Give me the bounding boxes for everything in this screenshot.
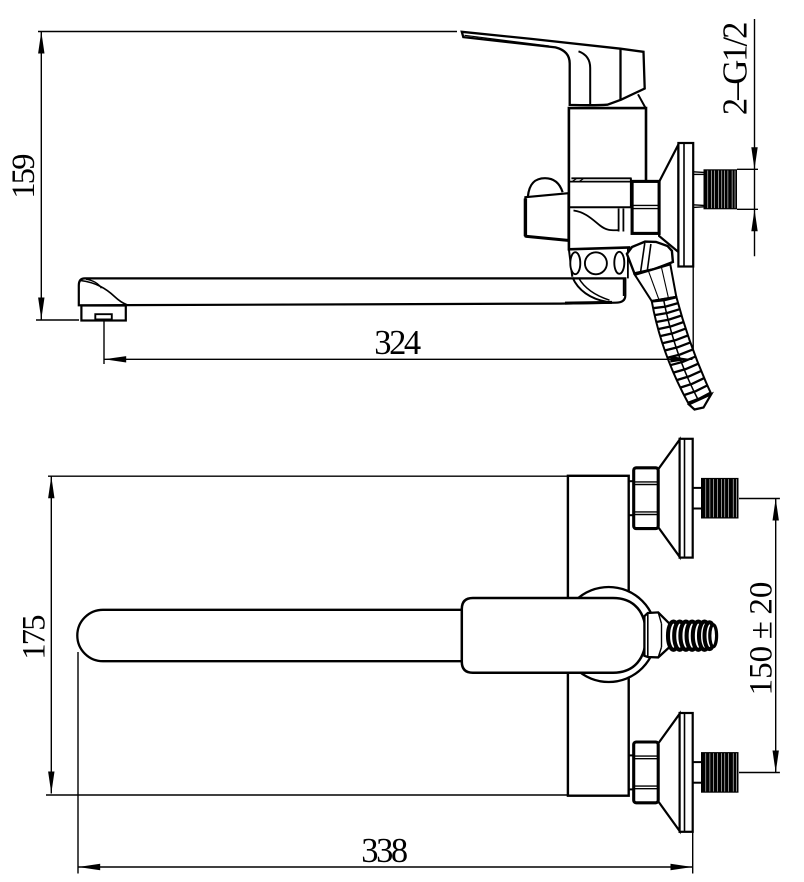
svg-text:324: 324 [374, 324, 421, 362]
svg-text:150 ± 20: 150 ± 20 [744, 582, 780, 696]
svg-text:2–G1/2: 2–G1/2 [717, 23, 755, 115]
svg-text:175: 175 [17, 616, 53, 660]
svg-text:159: 159 [6, 155, 42, 199]
svg-text:338: 338 [361, 832, 407, 870]
